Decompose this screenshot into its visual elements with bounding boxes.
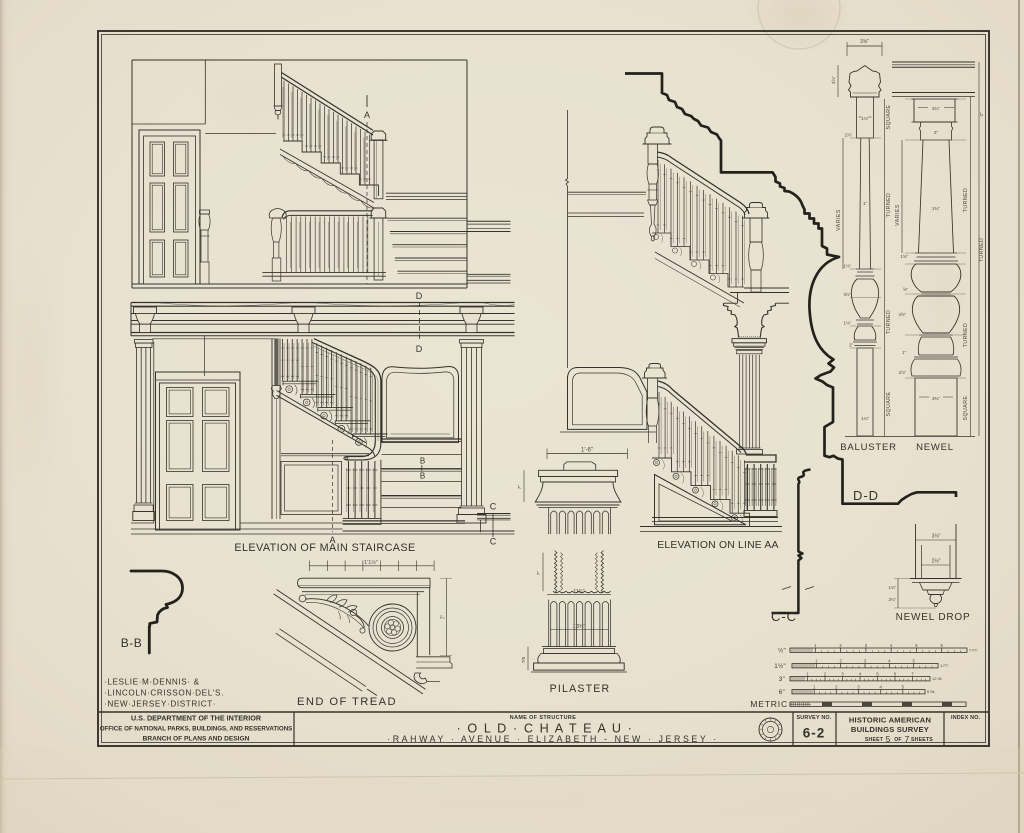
svg-text:1¾": 1¾"	[932, 206, 940, 211]
svg-text:1": 1"	[863, 201, 868, 206]
svg-text:⅝": ⅝"	[903, 287, 909, 292]
svg-text:1½": 1½"	[774, 663, 786, 670]
svg-text:1¾": 1¾"	[889, 585, 897, 590]
svg-text:6 IN.: 6 IN.	[927, 689, 935, 694]
svg-text:3¾": 3¾"	[932, 396, 940, 401]
svg-text:7": 7"	[441, 615, 447, 620]
svg-text:1¼": 1¼"	[861, 416, 869, 421]
svg-text:TURNED: TURNED	[963, 323, 969, 348]
svg-text:·LINCOLN·CRISSON·DEL'S.: ·LINCOLN·CRISSON·DEL'S.	[104, 689, 224, 698]
svg-text:NAME OF STRUCTURE: NAME OF STRUCTURE	[510, 715, 576, 721]
svg-text:1⅛": 1⅛"	[844, 264, 852, 269]
svg-text:-2": -2"	[979, 112, 984, 118]
svg-text:1⅛": 1⅛"	[844, 321, 852, 326]
svg-text:OF: OF	[894, 737, 902, 743]
svg-text:BRANCH OF PLANS AND DESIGN: BRANCH OF PLANS AND DESIGN	[143, 736, 250, 743]
svg-text:C: C	[490, 537, 497, 547]
svg-text:C-C: C-C	[771, 609, 797, 624]
svg-text:·RAHWAY · AVENUE · ELIZABETH -: ·RAHWAY · AVENUE · ELIZABETH - NEW · JER…	[387, 734, 719, 744]
svg-text:1'3¾": 1'3¾"	[573, 624, 586, 630]
svg-text:PILASTER: PILASTER	[550, 683, 611, 695]
svg-text:B: B	[420, 457, 425, 466]
svg-text:D: D	[416, 291, 423, 301]
svg-text:A: A	[364, 110, 370, 120]
svg-text:3¼": 3¼"	[932, 106, 940, 111]
svg-text:2": 2"	[934, 130, 939, 135]
svg-text:11¾": 11¾"	[573, 589, 584, 595]
svg-text:ELEVATION ON LINE AA: ELEVATION ON LINE AA	[657, 540, 778, 551]
svg-text:2¼": 2¼"	[889, 597, 897, 602]
svg-text:3⅝": 3⅝"	[860, 39, 869, 45]
svg-text:TURNED: TURNED	[963, 188, 969, 213]
svg-text:TURNED: TURNED	[886, 193, 892, 218]
svg-text:B-B: B-B	[121, 636, 143, 650]
svg-text:OFFICE OF NATIONAL PARKS, BUIL: OFFICE OF NATIONAL PARKS, BUILDINGS, AND…	[100, 726, 293, 733]
svg-text:VARIES: VARIES	[895, 204, 901, 226]
svg-text:·LESLIE·M·DENNIS· &: ·LESLIE·M·DENNIS· &	[104, 678, 200, 687]
svg-text:C: C	[490, 502, 497, 512]
svg-text:HISTORIC AMERICAN: HISTORIC AMERICAN	[849, 716, 931, 725]
svg-text:1 FT.: 1 FT.	[940, 663, 949, 668]
svg-text:7": 7"	[536, 571, 542, 576]
svg-text:1": 1"	[902, 350, 906, 355]
svg-text:B: B	[420, 472, 425, 481]
svg-text:1⅝": 1⅝"	[901, 254, 909, 259]
svg-text:4⅝": 4⅝"	[899, 312, 907, 317]
svg-text:SQUARE: SQUARE	[963, 396, 969, 421]
svg-text:7/8: 7/8	[521, 656, 526, 663]
svg-text:SQUARE: SQUARE	[886, 105, 892, 130]
svg-text:5: 5	[886, 734, 891, 744]
svg-text:2⅞": 2⅞"	[845, 133, 853, 138]
svg-text:12 IN.: 12 IN.	[932, 676, 943, 681]
svg-text:TURNED: TURNED	[979, 238, 985, 263]
svg-text:7: 7	[905, 734, 910, 744]
svg-text:3": 3"	[779, 676, 785, 683]
svg-text:END OF TREAD: END OF TREAD	[297, 696, 397, 708]
svg-text:1'-6": 1'-6"	[581, 448, 593, 454]
svg-text:BUILDINGS SURVEY: BUILDINGS SURVEY	[851, 725, 929, 734]
svg-text:1'1½": 1'1½"	[364, 559, 378, 566]
svg-text:1¼": 1¼"	[861, 116, 869, 121]
svg-text:SHEET: SHEET	[865, 737, 884, 743]
svg-text:TURNED: TURNED	[886, 310, 892, 335]
svg-text:SURVEY NO.: SURVEY NO.	[796, 715, 831, 721]
svg-text:7": 7"	[517, 485, 523, 490]
svg-text:3⅞": 3⅞"	[831, 76, 836, 84]
svg-text:7 FT.: 7 FT.	[969, 648, 978, 653]
svg-text:NEWEL: NEWEL	[916, 442, 954, 453]
svg-text:6": 6"	[779, 689, 785, 696]
svg-text:D: D	[416, 344, 423, 354]
svg-text:BALUSTER: BALUSTER	[840, 442, 897, 453]
svg-text:VARIES: VARIES	[836, 209, 842, 231]
svg-text:3⅞": 3⅞"	[899, 370, 907, 375]
svg-text:ELEVATION OF MAIN STAIRCASE: ELEVATION OF MAIN STAIRCASE	[234, 542, 415, 554]
svg-text:3⅛": 3⅛"	[932, 534, 941, 540]
svg-text:D-D: D-D	[853, 488, 879, 503]
svg-text:6-2: 6-2	[803, 726, 826, 741]
svg-text:NEWEL DROP: NEWEL DROP	[896, 612, 971, 623]
svg-text:INDEX NO.: INDEX NO.	[951, 715, 981, 721]
svg-text:SQUARE: SQUARE	[886, 392, 892, 417]
svg-text:·NEW·JERSEY·DISTRICT·: ·NEW·JERSEY·DISTRICT·	[104, 700, 216, 709]
svg-text:½": ½"	[778, 647, 786, 654]
svg-text:METRIC: METRIC	[750, 699, 788, 709]
svg-text:SHEETS: SHEETS	[911, 737, 933, 743]
svg-text:U.S. DEPARTMENT OF THE INTERIO: U.S. DEPARTMENT OF THE INTERIOR	[131, 714, 262, 723]
svg-text:3½": 3½"	[844, 292, 852, 297]
svg-text:2": 2"	[849, 343, 853, 348]
svg-text:2⅛": 2⅛"	[932, 559, 941, 565]
